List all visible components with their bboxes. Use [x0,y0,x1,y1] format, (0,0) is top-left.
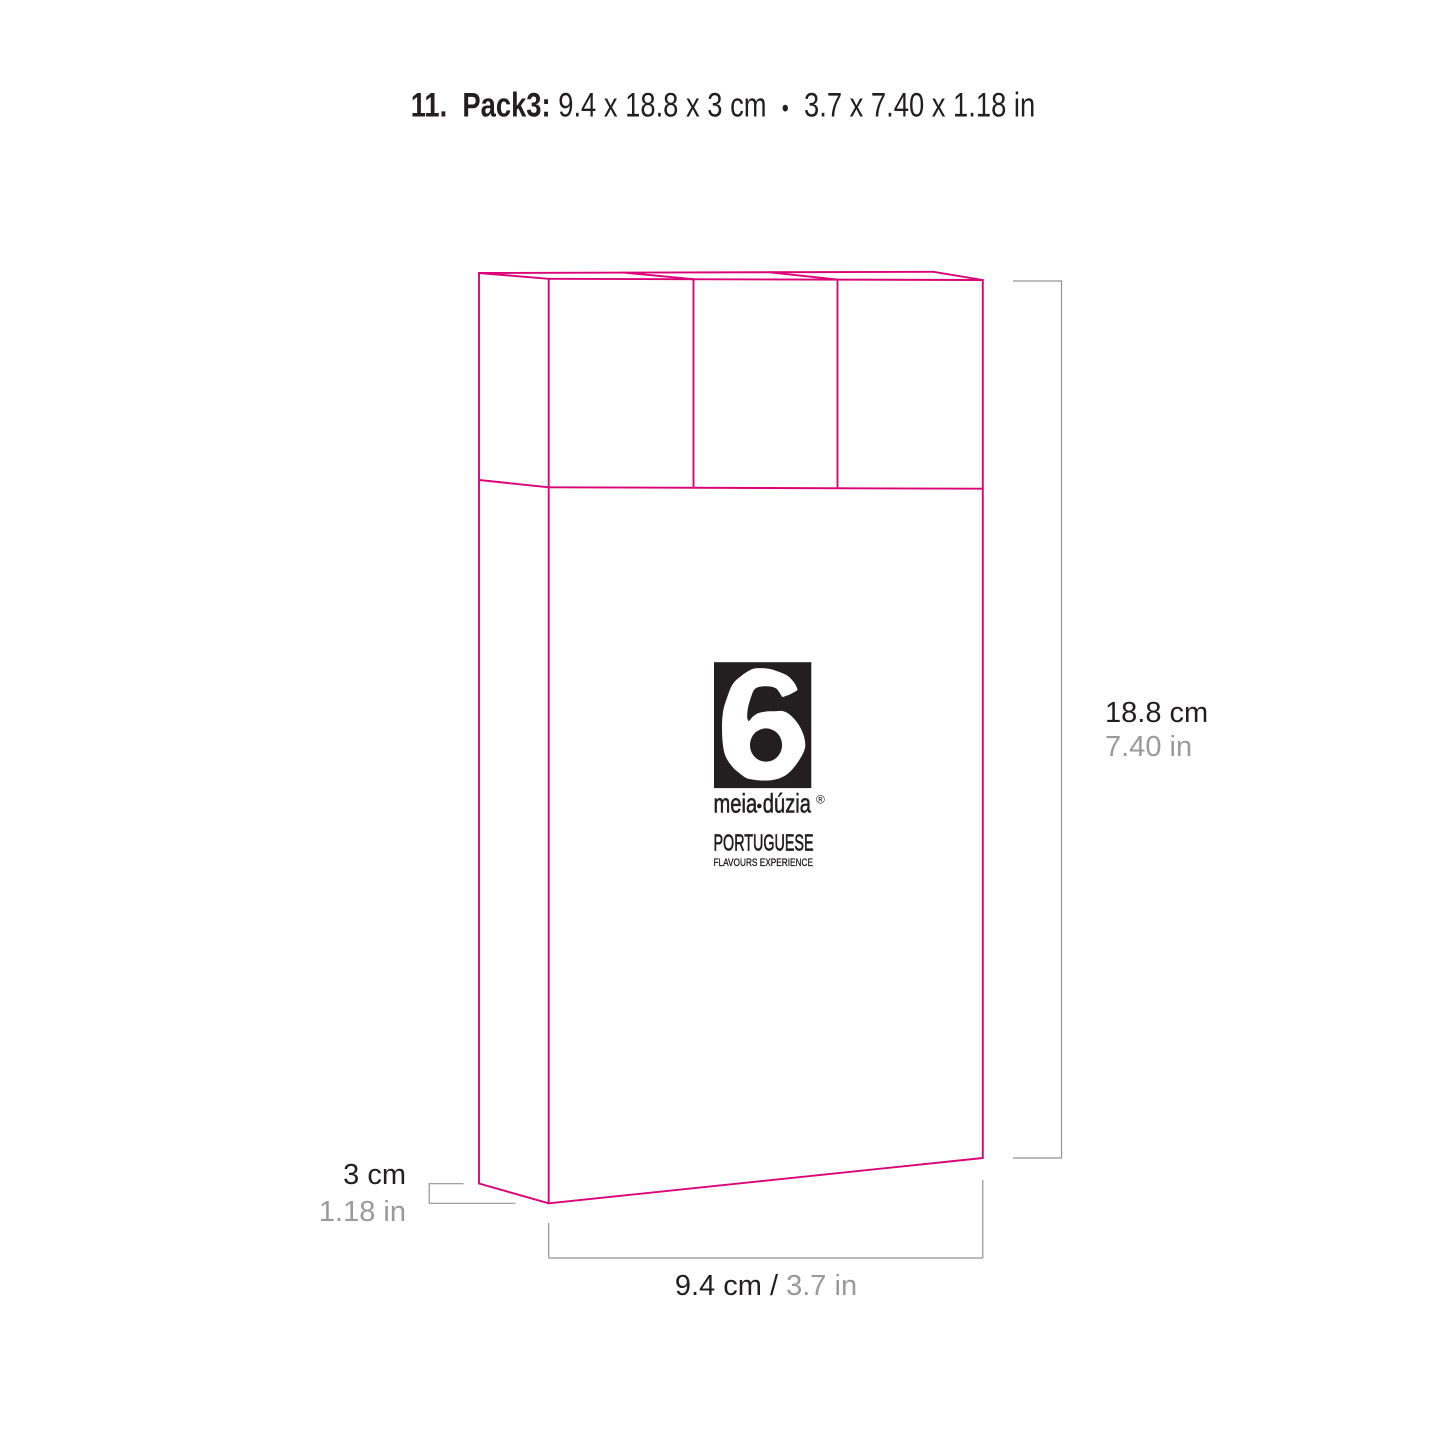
svg-text:®: ® [816,793,825,807]
svg-text:9.4 cm / 3.7 in: 9.4 cm / 3.7 in [675,1270,857,1302]
svg-text:PORTUGUESE: PORTUGUESE [714,829,814,855]
svg-text:1.18 in: 1.18 in [319,1196,406,1228]
svg-text:18.8 cm: 18.8 cm [1105,697,1208,729]
svg-text:7.40 in: 7.40 in [1105,731,1192,763]
svg-text:3 cm: 3 cm [343,1159,406,1191]
svg-text:11. Pack3: 9.4 x 18.8 x 3 cm: 11. Pack3: 9.4 x 18.8 x 3 cm • 3.7 x 7.4… [411,87,1035,125]
svg-text:FLAVOURS EXPERIENCE: FLAVOURS EXPERIENCE [714,857,814,869]
svg-text:meia dúzia: meia dúzia [714,789,812,819]
